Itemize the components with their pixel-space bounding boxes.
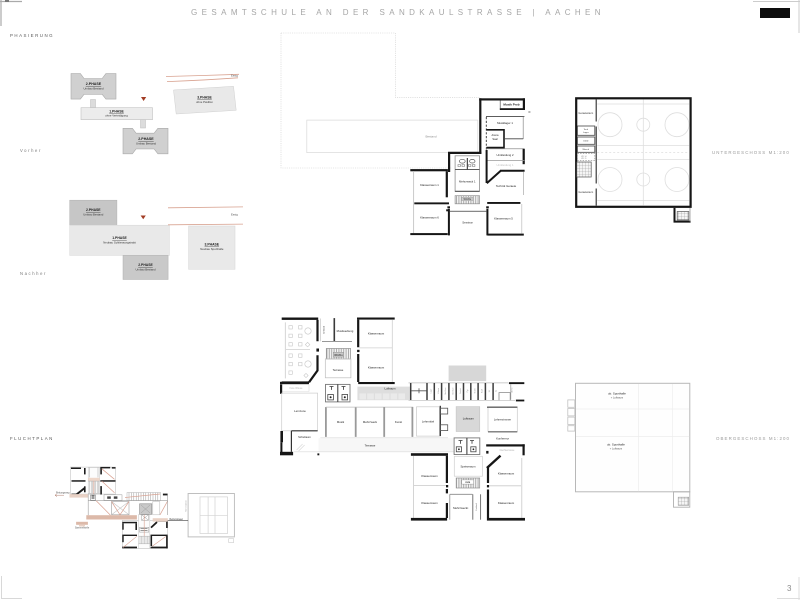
svg-text:Sammelstelle: Sammelstelle [75, 526, 90, 529]
svg-text:freie Wiese: freie Wiese [290, 386, 304, 390]
svg-text:ob. Sporthalle: ob. Sporthalle [608, 392, 626, 396]
svg-text:Seminar: Seminar [462, 221, 472, 225]
svg-text:FLUCHTPLAN: FLUCHTPLAN [10, 436, 54, 441]
svg-text:Mehrzweck 1: Mehrzweck 1 [459, 180, 476, 184]
svg-text:Mehrzweck: Mehrzweck [363, 420, 378, 424]
svg-text:OBERGESCHOSS M1:200: OBERGESCHOSS M1:200 [716, 436, 790, 441]
svg-text:Musik Prob: Musik Prob [503, 103, 519, 107]
svg-text:Sammelplatz: Sammelplatz [185, 500, 188, 512]
svg-text:Vorher: Vorher [20, 148, 42, 153]
svg-text:Musiklager 1: Musiklager 1 [497, 121, 513, 125]
svg-text:+ Luftraum: + Luftraum [610, 446, 622, 450]
svg-text:Nachher: Nachher [20, 271, 47, 276]
svg-text:Klassenraum: Klassenraum [368, 332, 385, 336]
svg-text:Lager: Lager [583, 131, 589, 134]
svg-text:Klassenraum 1: Klassenraum 1 [420, 183, 439, 187]
svg-text:Saal: Saal [492, 137, 498, 141]
svg-text:V.Raum: V.Raum [438, 387, 440, 394]
svg-text:Cp: Cp [496, 390, 498, 392]
svg-text:Neubau Schliessungstrakt: Neubau Schliessungstrakt [103, 240, 136, 244]
svg-text:Musikuebung: Musikuebung [337, 329, 354, 333]
svg-text:WC/Du: WC/Du [334, 353, 343, 357]
svg-text:Umbau Bestand: Umbau Bestand [83, 87, 104, 91]
svg-text:Kunst: Kunst [395, 420, 402, 424]
svg-text:Umkleidung 1: Umkleidung 1 [496, 163, 514, 167]
svg-text:Geraeteraum: Geraeteraum [578, 112, 593, 115]
svg-text:Umkleid: Umkleid [476, 503, 478, 510]
svg-text:Neubau Sporthalle: Neubau Sporthalle [200, 247, 224, 251]
svg-text:Klassenraum: Klassenraum [368, 366, 385, 370]
svg-text:Technik Geraete: Technik Geraete [496, 184, 517, 188]
svg-text:GESAMTSCHULE AN DER SANDKAULST: GESAMTSCHULE AN DER SANDKAULSTRASSE | AA… [191, 8, 605, 17]
svg-text:Klassenraum 5: Klassenraum 5 [494, 217, 513, 221]
svg-text:Klassenraum: Klassenraum [421, 474, 438, 478]
svg-text:Umbau Bestand: Umbau Bestand [83, 212, 104, 216]
svg-text:Essig: Essig [231, 74, 238, 78]
svg-text:Klassenraum 6: Klassenraum 6 [420, 215, 439, 219]
svg-text:Umbau Bestand: Umbau Bestand [135, 267, 156, 271]
svg-text:Terrasse: Terrasse [333, 368, 344, 372]
svg-text:Aula: Aula [465, 481, 471, 484]
svg-text:ob. Sporthalle: ob. Sporthalle [607, 443, 625, 447]
svg-text:UNTERGESCHOSS M1:200: UNTERGESCHOSS M1:200 [712, 150, 790, 155]
svg-text:Umkleidung 2: Umkleidung 2 [496, 153, 514, 157]
svg-text:St.GB: St.GB [473, 388, 476, 394]
svg-text:Sanitat: Sanitat [459, 388, 462, 394]
svg-text:Schulraum: Schulraum [298, 435, 312, 439]
svg-text:2.PHASE: 2.PHASE [86, 82, 102, 86]
svg-text:Klassenraum: Klassenraum [498, 472, 515, 476]
svg-text:Umbau Bestand: Umbau Bestand [136, 142, 157, 146]
svg-text:Arena: Arena [492, 133, 499, 137]
svg-text:Geraeteraum: Geraeteraum [578, 191, 593, 194]
svg-text:+ Luftraum: + Luftraum [611, 395, 623, 399]
svg-text:Lehrerzimmer: Lehrerzimmer [494, 418, 511, 422]
svg-text:3: 3 [787, 584, 792, 593]
svg-text:Umkl: Umkl [583, 141, 588, 143]
svg-text:Terrasse: Terrasse [365, 444, 376, 448]
svg-text:Konferenz: Konferenz [496, 437, 509, 441]
svg-text:ohne Verteidigung: ohne Verteidigung [105, 114, 128, 118]
svg-text:2.PHASE: 2.PHASE [138, 137, 154, 141]
svg-text:Lernzone: Lernzone [294, 409, 306, 413]
svg-text:WC/Du: WC/Du [464, 198, 472, 201]
svg-text:Musik: Musik [337, 420, 345, 424]
svg-text:Speiseraum: Speiseraum [461, 465, 477, 469]
svg-text:Klassenraum: Klassenraum [421, 501, 438, 505]
svg-text:PHASIERUNG: PHASIERUNG [10, 33, 54, 38]
svg-text:Lager: Lager [431, 388, 433, 393]
svg-text:Klassenraum: Klassenraum [498, 501, 515, 505]
svg-text:Lehrmittel: Lehrmittel [422, 420, 435, 424]
svg-text:NstZi: NstZi [481, 388, 484, 393]
svg-text:Rettungsweg: Rettungsweg [56, 492, 70, 495]
svg-text:Mehrzweckr.: Mehrzweckr. [453, 506, 469, 510]
svg-text:Bestand: Bestand [425, 135, 436, 139]
svg-text:Dachterrasse: Dachterrasse [500, 449, 515, 452]
svg-text:Ber.Buro: Ber.Buro [445, 388, 447, 395]
svg-text:WC D: WC D [581, 158, 587, 160]
svg-text:Wasch: Wasch [582, 149, 589, 151]
svg-text:Ber.Buro: Ber.Buro [453, 388, 455, 395]
svg-text:ohne Pavillon: ohne Pavillon [196, 100, 213, 104]
svg-text:Luftraum: Luftraum [463, 417, 475, 421]
svg-text:Umkleid: Umkleid [324, 325, 326, 334]
svg-text:Essig: Essig [231, 213, 238, 217]
svg-text:Luftraum: Luftraum [384, 387, 396, 391]
svg-text:Tech: Tech [583, 129, 588, 131]
